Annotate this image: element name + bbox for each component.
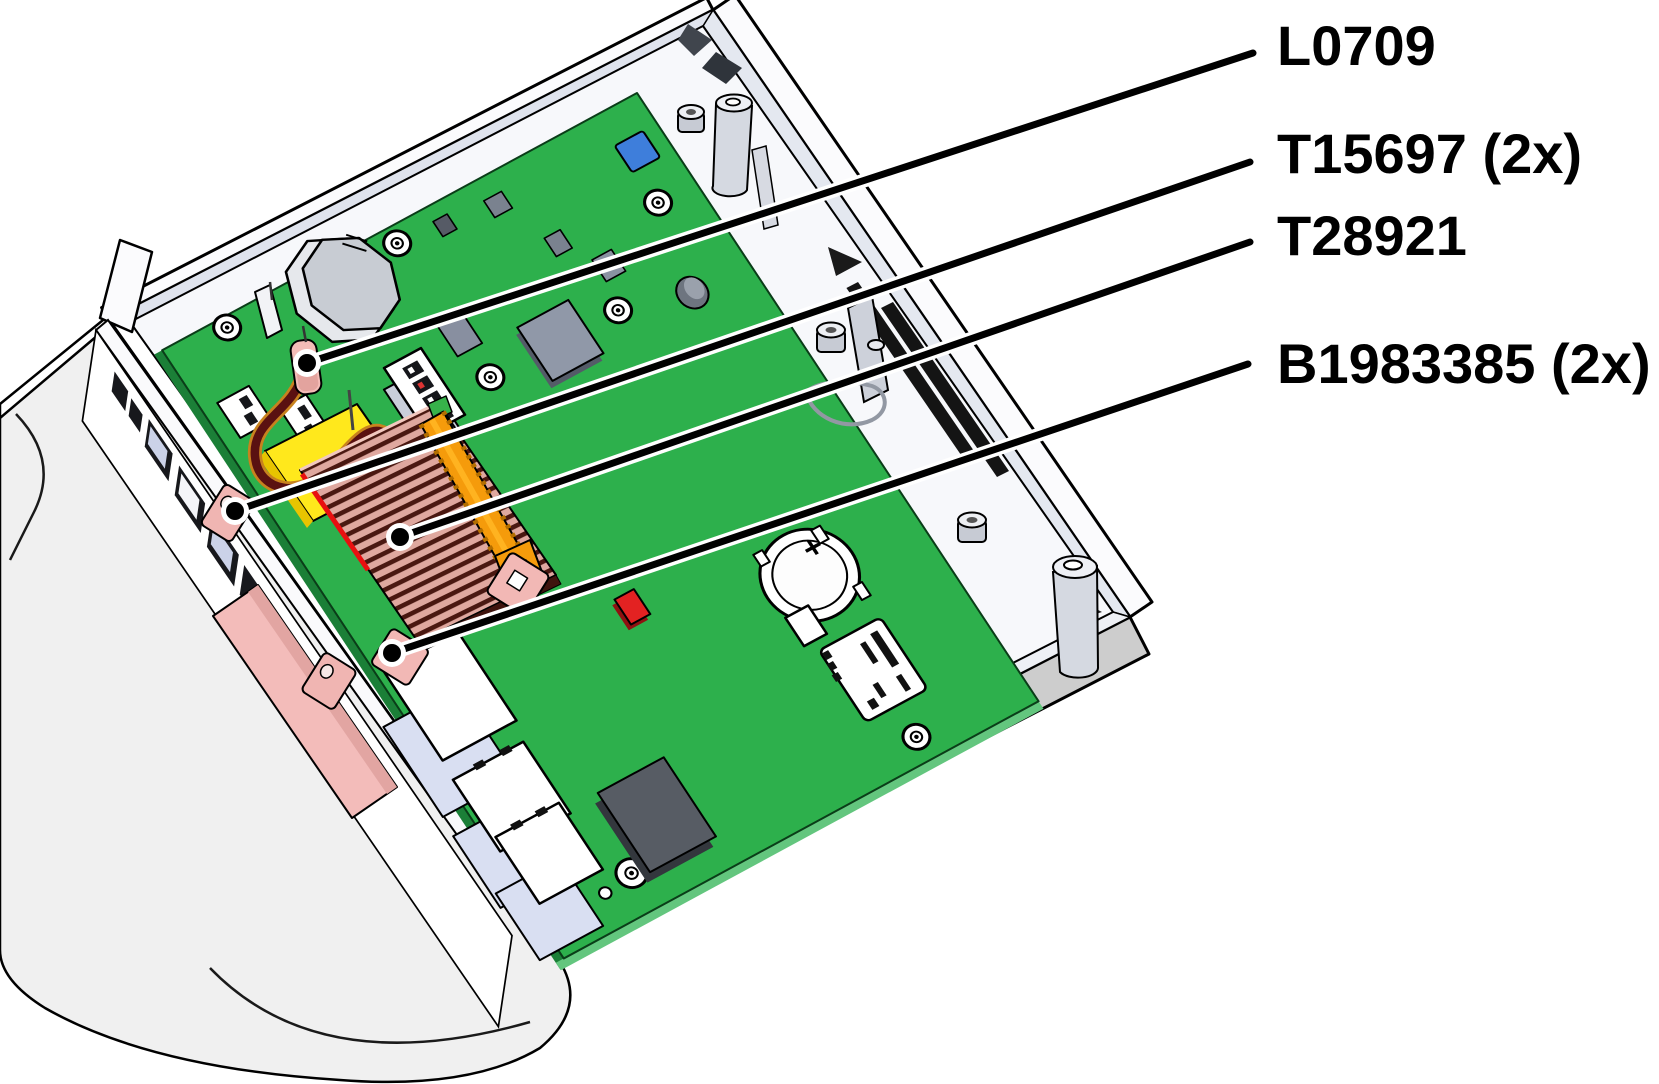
standoff-tall-right	[1053, 566, 1098, 678]
leader-dot-t28921	[386, 523, 414, 551]
leader-dot-b1983385	[378, 639, 406, 667]
callout-label-l0709: L0709	[1277, 14, 1436, 77]
callout-label-t28921: T28921	[1277, 204, 1467, 267]
callout-label-t15697: T15697 (2x)	[1277, 122, 1582, 185]
hardware-diagram: L0709 T15697 (2x) T28921 B1983385 (2x)	[0, 0, 1659, 1084]
hex-stud	[817, 323, 845, 353]
leader-dot-l0709	[293, 349, 321, 377]
standoff-tall-top	[712, 104, 752, 196]
diagram-page: L0709 T15697 (2x) T28921 B1983385 (2x)	[0, 0, 1659, 1084]
hex-stud	[678, 105, 704, 132]
hex-stud	[958, 513, 986, 543]
leader-dot-t15697	[221, 497, 249, 525]
callout-label-b1983385: B1983385 (2x)	[1277, 332, 1651, 395]
callout-labels: L0709 T15697 (2x) T28921 B1983385 (2x)	[1277, 14, 1651, 395]
